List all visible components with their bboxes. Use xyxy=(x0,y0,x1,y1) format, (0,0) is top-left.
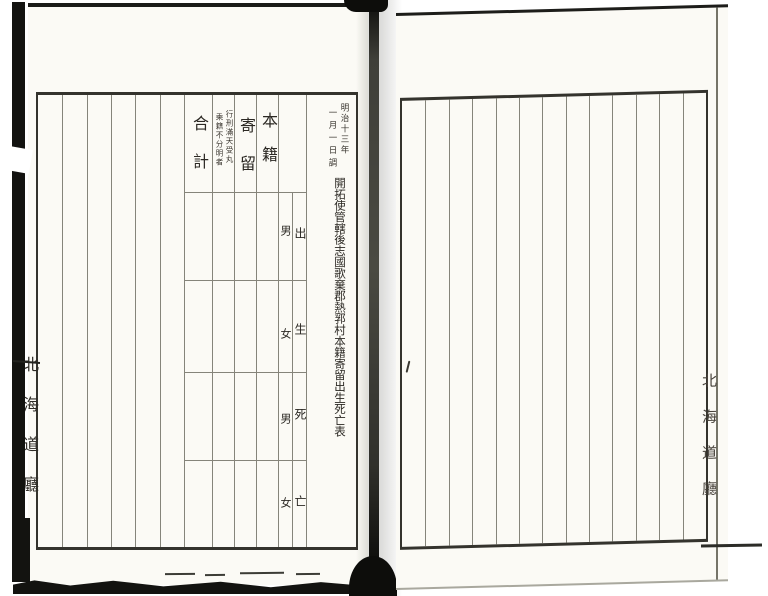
survey-date-line-1: 明治十三年 xyxy=(338,103,348,156)
scanned-register-spread: 本籍 寄留 行刑滿天受丸 乘籍不分明者 合計 出 男 生 女 死 男 亡 女 明… xyxy=(0,0,768,596)
edge-stamp-right: 北海道廳 xyxy=(699,373,716,517)
document-title: 開拓使管轄後志國歌棄郡熱郛村本籍寄留出生死亡表 xyxy=(328,177,345,437)
ruled-line xyxy=(683,93,684,539)
page-stack-edge-line xyxy=(701,543,762,547)
row-label-category: 出 xyxy=(291,227,306,239)
ruled-line xyxy=(87,95,88,547)
row-label-sex: 女 xyxy=(278,497,291,508)
ruled-line xyxy=(62,95,63,547)
edge-dash xyxy=(205,574,225,576)
ruled-line xyxy=(566,97,567,543)
ruled-line xyxy=(111,95,112,547)
row-label-sex: 男 xyxy=(278,225,291,236)
ruled-line xyxy=(542,97,543,543)
ruled-line xyxy=(135,95,136,547)
right-table xyxy=(400,90,708,550)
ruled-line xyxy=(659,94,660,540)
ruled-line xyxy=(519,98,520,544)
ruled-line xyxy=(472,99,473,545)
left-table: 本籍 寄留 行刑滿天受丸 乘籍不分明者 合計 出 男 生 女 死 男 亡 女 明… xyxy=(36,92,358,550)
column-header-kiryu: 寄留 xyxy=(236,117,254,193)
row-label-category: 死 xyxy=(291,408,306,420)
row-divider-line xyxy=(184,460,306,461)
row-label-sex: 女 xyxy=(278,328,291,339)
ruled-line xyxy=(292,192,293,547)
ruled-line xyxy=(612,95,613,541)
ruled-line xyxy=(160,95,161,547)
row-divider-line xyxy=(184,280,306,281)
row-label-category: 生 xyxy=(291,323,306,335)
kiryu-note-line-2: 乘籍不分明者 xyxy=(214,113,223,167)
kiryu-note-line-1: 行刑滿天受丸 xyxy=(224,110,233,164)
row-divider-line xyxy=(184,372,306,373)
spine-top-shadow xyxy=(344,0,388,12)
torn-edge-notch xyxy=(6,146,33,174)
ruled-line xyxy=(278,95,279,547)
edge-dash xyxy=(165,573,195,575)
ruled-line xyxy=(449,100,450,546)
torn-left-edge xyxy=(12,2,25,582)
ruled-line xyxy=(212,95,213,547)
torn-left-edge-blob xyxy=(12,518,30,582)
ruled-line xyxy=(636,95,637,541)
ruled-line xyxy=(589,96,590,542)
book-spine-bar xyxy=(369,0,379,596)
ruled-line xyxy=(496,98,497,544)
edge-dash xyxy=(296,573,320,575)
ruled-line xyxy=(425,100,426,546)
right-page: 北海道廳 xyxy=(396,4,728,590)
row-label-sex: 男 xyxy=(278,413,291,424)
ruled-line xyxy=(234,95,235,547)
row-label-category: 亡 xyxy=(291,495,306,507)
column-header-honseki: 本籍 xyxy=(258,112,276,180)
survey-date-line-2: 一月一日調 xyxy=(326,108,336,171)
column-header-gokei: 合計 xyxy=(189,115,207,191)
ruled-line xyxy=(256,95,257,547)
ruled-line xyxy=(184,95,185,547)
ruled-line xyxy=(306,95,307,547)
